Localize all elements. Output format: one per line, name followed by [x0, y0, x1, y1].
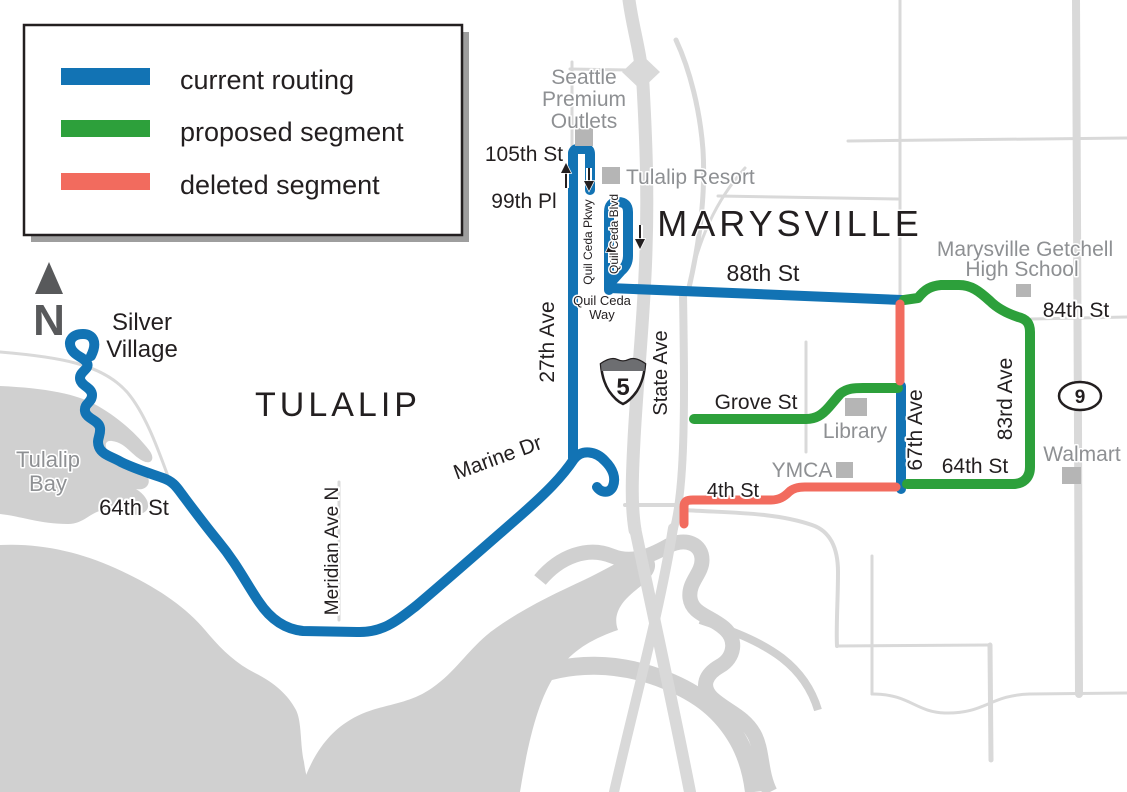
place-label-spo-3: Outlets: [551, 110, 618, 133]
place-label-ymca: YMCA: [772, 459, 833, 482]
road-label-grove-st: Grove St: [715, 391, 798, 414]
map-canvas: 5 9 TULALIP MARYSVILLE Silver Village Tu…: [0, 0, 1127, 792]
place-label-tulalip-bay-2: Bay: [29, 471, 67, 496]
road-label-meridian-ave-n: Meridian Ave N: [322, 487, 343, 616]
legend-label-deleted: deleted segment: [180, 170, 380, 200]
building-marker-library: [845, 398, 867, 416]
road-label-88th-st: 88th St: [727, 260, 800, 286]
road-grid-h-647: [837, 645, 990, 646]
place-label-getchell-2: High School: [965, 258, 1078, 281]
legend-label-current: current routing: [180, 65, 354, 95]
building-marker-walmart: [1062, 467, 1081, 484]
road-sr9: [1076, 0, 1079, 694]
road-label-99th-pl: 99th Pl: [491, 190, 556, 213]
road-state-ave: [673, 294, 684, 532]
place-label-spo-2: Premium: [542, 88, 626, 111]
road-label-83rd-ave: 83rd Ave: [994, 358, 1017, 441]
building-marker-ymca: [836, 462, 853, 478]
road-i5-interchange-diamond: [622, 54, 660, 90]
road-label-4th-st: 4th St: [707, 480, 760, 502]
region-label-tulalip: TULALIP: [255, 386, 421, 424]
route-map-page: { "legend": { "items": [ {"id": "current…: [0, 0, 1127, 792]
road-label-67th-ave: 67th Ave: [904, 389, 927, 470]
route-9-shield: 9: [1059, 382, 1101, 410]
water-sound: [0, 545, 312, 792]
place-label-spo-1: Seattle: [551, 66, 616, 89]
road-label-105th-st: 105th St: [485, 143, 563, 166]
legend-swatch-current: [61, 68, 150, 85]
legend-label-proposed: proposed segment: [180, 117, 404, 147]
road-h-140: [848, 138, 1127, 141]
road-label-quil-ceda-blvd: Quil Ceda Blvd: [607, 194, 621, 274]
place-label-silver-village-1: Silver: [112, 309, 172, 336]
building-marker-tulalip-resort: [602, 167, 620, 184]
interstate-5-shield-number: 5: [616, 374, 629, 401]
road-label-64th-st-west: 64th St: [99, 495, 169, 520]
building-marker-high-school: [1016, 284, 1031, 297]
route-current-88th-st: [609, 288, 902, 300]
road-label-marine-dr: Marine Dr: [451, 431, 545, 484]
road-label-quil-ceda-way-1: Quil Ceda: [573, 293, 632, 308]
place-label-library: Library: [823, 420, 888, 443]
north-arrow-icon: N: [33, 262, 65, 345]
road-label-64th-st-east: 64th St: [942, 455, 1009, 478]
road-label-quil-ceda-way-2: Way: [589, 307, 615, 322]
place-label-tulalip-bay-1: Tulalip: [16, 447, 80, 472]
road-label-27th-ave: 27th Ave: [536, 301, 559, 382]
north-arrow-triangle: [35, 262, 63, 294]
legend-swatch-deleted: [61, 173, 150, 190]
road-h-196: [718, 196, 898, 199]
road-label-quil-ceda-pkwy: Quil Ceda Pkwy: [581, 199, 595, 284]
place-label-tulalip-resort: Tulalip Resort: [626, 166, 755, 189]
north-arrow-letter: N: [33, 296, 65, 345]
place-label-walmart: Walmart: [1043, 443, 1121, 466]
legend-swatch-proposed: [61, 120, 150, 137]
region-label-marysville: MARYSVILLE: [657, 203, 922, 244]
place-label-silver-village-2: Village: [106, 336, 178, 363]
road-grid-h-694: [872, 693, 1127, 713]
route-9-shield-number: 9: [1075, 387, 1086, 408]
road-label-84th-st: 84th St: [1043, 299, 1110, 322]
road-label-state-ave: State Ave: [650, 330, 672, 415]
legend: current routing proposed segment deleted…: [24, 25, 469, 242]
